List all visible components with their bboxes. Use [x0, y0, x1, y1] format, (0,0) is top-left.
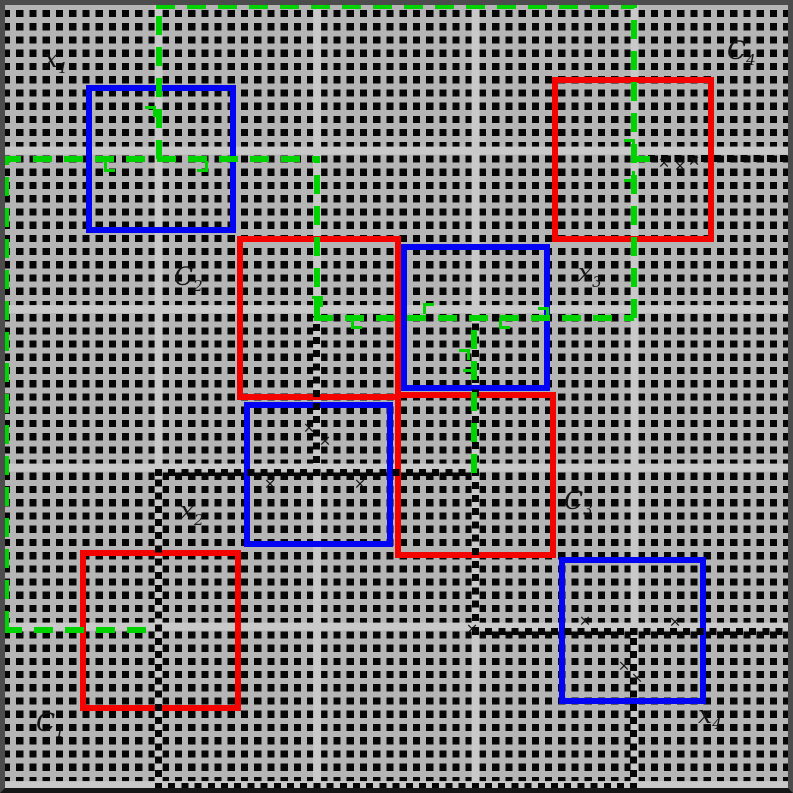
green-top-left-vert — [156, 3, 162, 159]
label-subscript: 4 — [746, 51, 756, 69]
label-base: x — [698, 700, 712, 729]
cross-mark: × — [303, 421, 316, 436]
chain-center-vert — [313, 316, 320, 476]
green-center-vert — [471, 318, 477, 473]
green-hook-mark — [104, 161, 115, 172]
green-upper-mid-vert — [314, 156, 320, 318]
green-left-edge-vert — [3, 156, 9, 630]
label-subscript: 1 — [55, 723, 65, 741]
cross-mark: × — [579, 614, 592, 629]
label-base: C — [174, 262, 193, 291]
label-x4: x4 — [698, 702, 722, 732]
green-hook-mark — [423, 303, 434, 314]
green-hook-mark — [538, 307, 549, 318]
green-lower-left-horiz — [3, 627, 158, 633]
cross-mark: × — [618, 659, 631, 674]
label-base: C — [727, 36, 746, 65]
green-hook-mark — [499, 318, 510, 329]
cross-mark: × — [688, 154, 701, 169]
green-hook-mark — [312, 296, 323, 307]
green-hook-mark — [624, 139, 635, 150]
label-base: x — [578, 258, 592, 287]
label-x1: x1 — [44, 46, 68, 76]
cross-mark: × — [319, 434, 332, 449]
label-base: C — [36, 708, 55, 737]
label-subscript: 3 — [592, 273, 602, 291]
green-hook-mark — [197, 161, 208, 172]
green-hook-mark — [463, 361, 474, 372]
cross-mark: × — [669, 615, 682, 630]
label-base: C — [564, 486, 583, 515]
green-upper-horiz — [2, 156, 317, 162]
cross-mark: × — [674, 159, 687, 174]
label-C1: C1 — [36, 710, 65, 740]
label-x3: x3 — [578, 260, 602, 290]
green-hook-mark — [351, 318, 362, 329]
cross-mark: × — [658, 156, 671, 171]
green-right-stub — [631, 156, 657, 162]
green-hook-mark — [145, 106, 156, 117]
label-x2: x2 — [180, 498, 204, 528]
math-figure: ××××××××××××x1C4C2x3x2C3C1x4 — [0, 0, 793, 793]
green-hook-mark — [624, 171, 635, 182]
label-subscript: 2 — [193, 277, 203, 295]
cross-mark: × — [631, 671, 644, 686]
green-hook-mark — [459, 349, 470, 360]
label-base: x — [180, 496, 194, 525]
label-C4: C4 — [727, 38, 756, 68]
chain-lower-right-vert — [630, 628, 637, 790]
cross-mark: × — [264, 477, 277, 492]
chain-mid-horiz — [155, 469, 480, 476]
chain-bottom-edge — [155, 783, 633, 790]
cross-mark: × — [466, 622, 479, 637]
label-subscript: 4 — [712, 715, 722, 733]
green-top-edge — [156, 3, 634, 9]
label-base: x — [44, 44, 58, 73]
label-subscript: 2 — [194, 511, 204, 529]
cross-mark: × — [354, 477, 367, 492]
label-subscript: 3 — [583, 501, 593, 519]
label-subscript: 1 — [58, 59, 68, 77]
label-C2: C2 — [174, 264, 203, 294]
label-C3: C3 — [564, 488, 593, 518]
